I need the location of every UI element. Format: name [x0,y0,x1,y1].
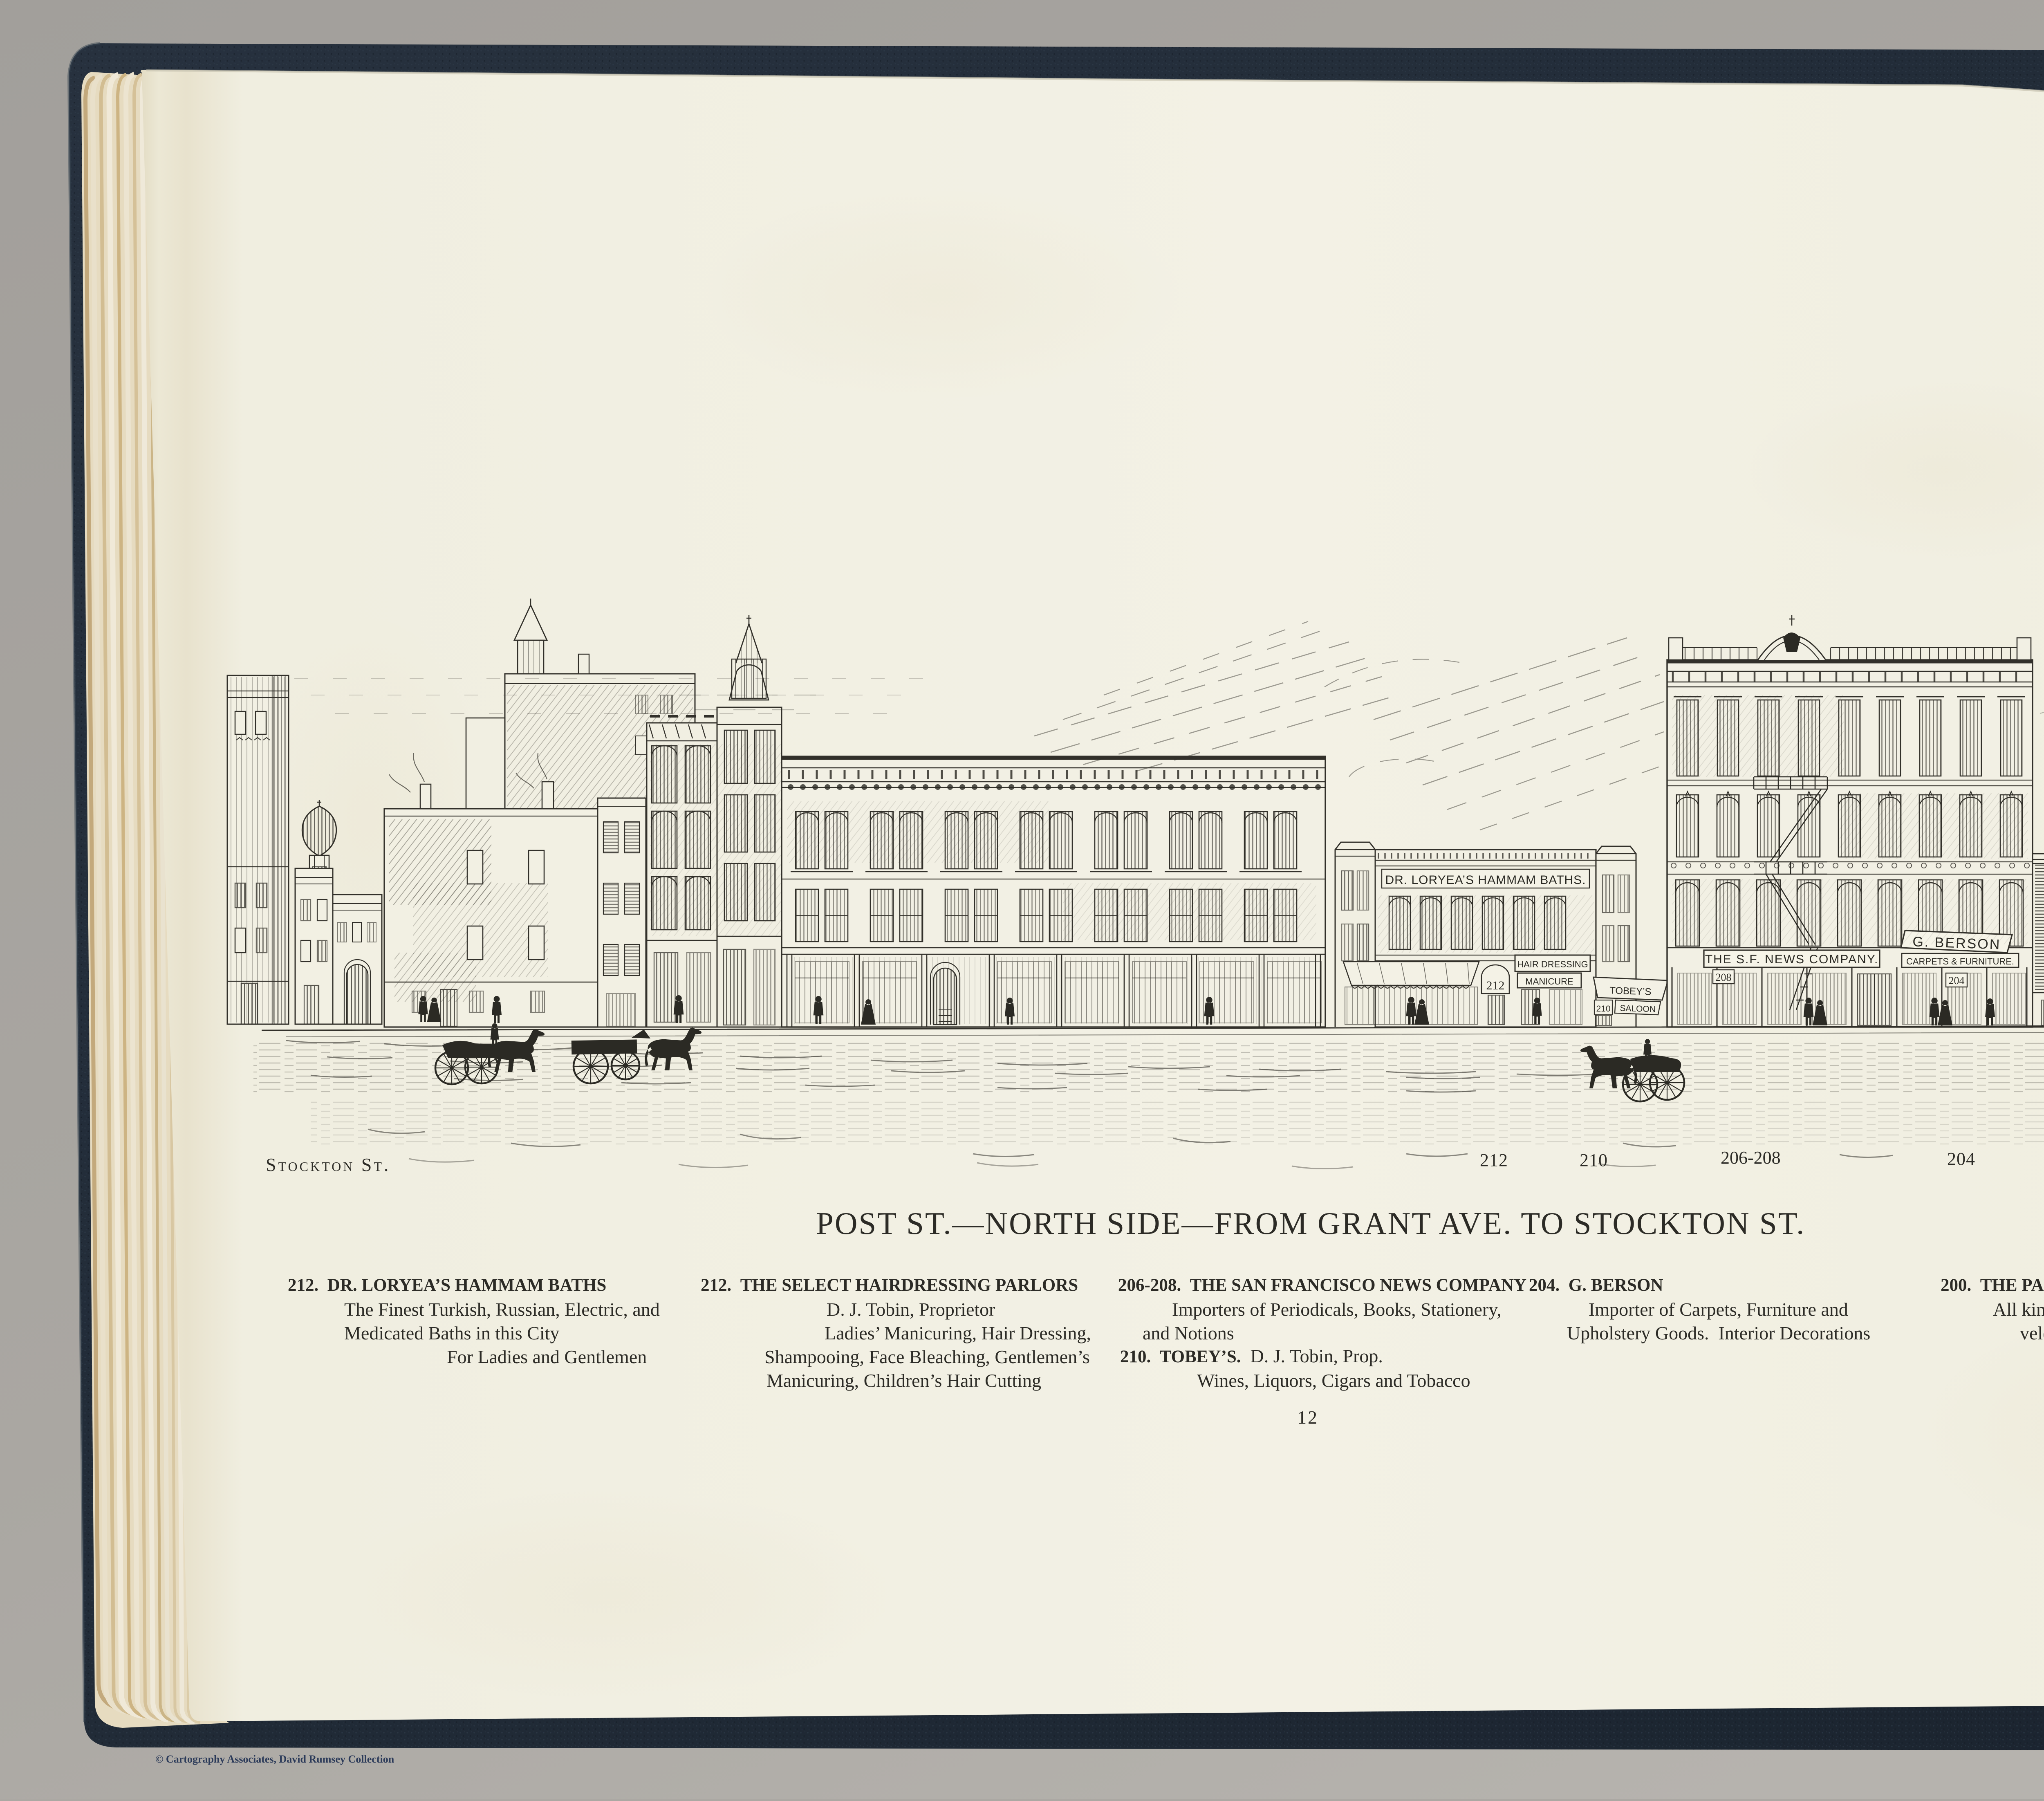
svg-text:210: 210 [1596,1004,1610,1014]
svg-text:212: 212 [1486,979,1505,992]
svg-text:TOBEY’S: TOBEY’S [1609,985,1652,998]
svg-text:DR. LORYEA’S HAMMAM BATHS.: DR. LORYEA’S HAMMAM BATHS. [1385,873,1586,887]
svg-text:HAIR DRESSING: HAIR DRESSING [1517,959,1588,969]
svg-text:MANICURE: MANICURE [1525,976,1573,987]
svg-text:THE S.F. NEWS COMPANY.: THE S.F. NEWS COMPANY. [1705,953,1879,966]
svg-text:SALOON: SALOON [1620,1003,1656,1014]
svg-text:208: 208 [1716,971,1732,983]
svg-text:204: 204 [1949,975,1965,987]
svg-text:CARPETS & FURNITURE.: CARPETS & FURNITURE. [1906,956,2014,967]
